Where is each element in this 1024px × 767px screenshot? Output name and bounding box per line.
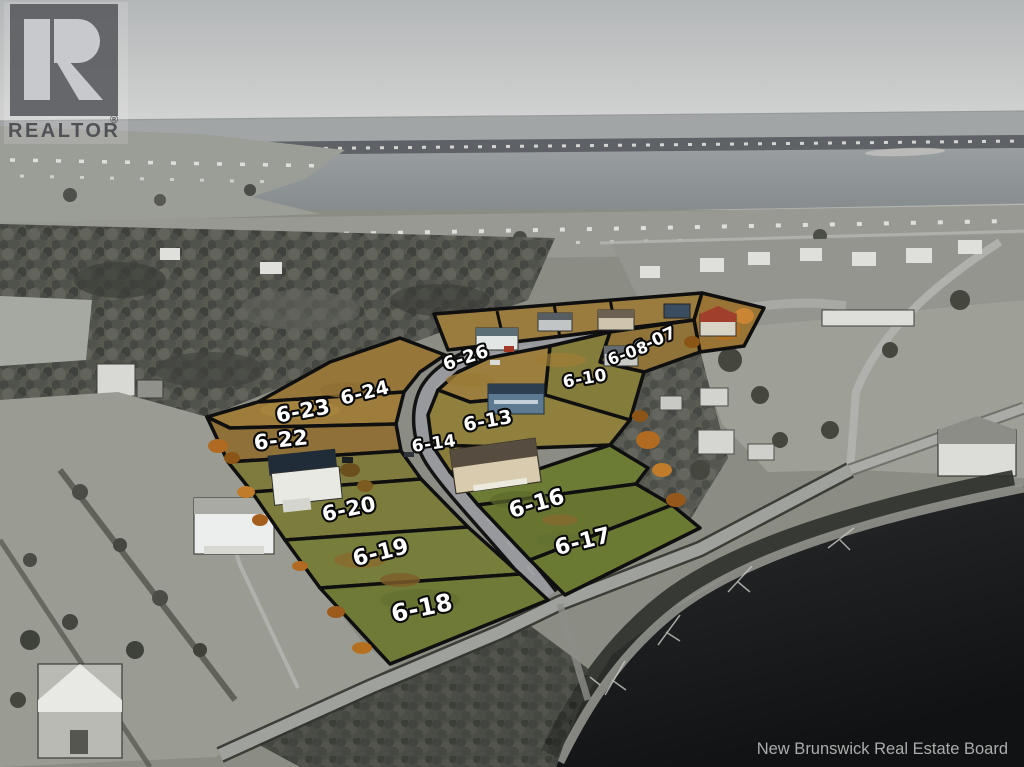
house-beige-top bbox=[598, 310, 634, 330]
registered-trademark-icon: ® bbox=[110, 114, 118, 126]
upper-left-field bbox=[0, 296, 92, 366]
car-in-driveway bbox=[342, 457, 353, 463]
aerial-listing-photo: REALTOR ® New Brunswick Real Estate Boar… bbox=[0, 0, 1024, 767]
realtor-logo: REALTOR ® bbox=[4, 2, 128, 144]
watermark-text: New Brunswick Real Estate Board bbox=[757, 740, 1008, 758]
long-building bbox=[822, 310, 914, 326]
realtor-logo-text: REALTOR bbox=[8, 120, 120, 142]
house-darkblue-top bbox=[664, 304, 690, 318]
aerial-photo-scene: REALTOR ® New Brunswick Real Estate Boar… bbox=[0, 0, 1024, 767]
house-gray-top bbox=[538, 313, 572, 331]
